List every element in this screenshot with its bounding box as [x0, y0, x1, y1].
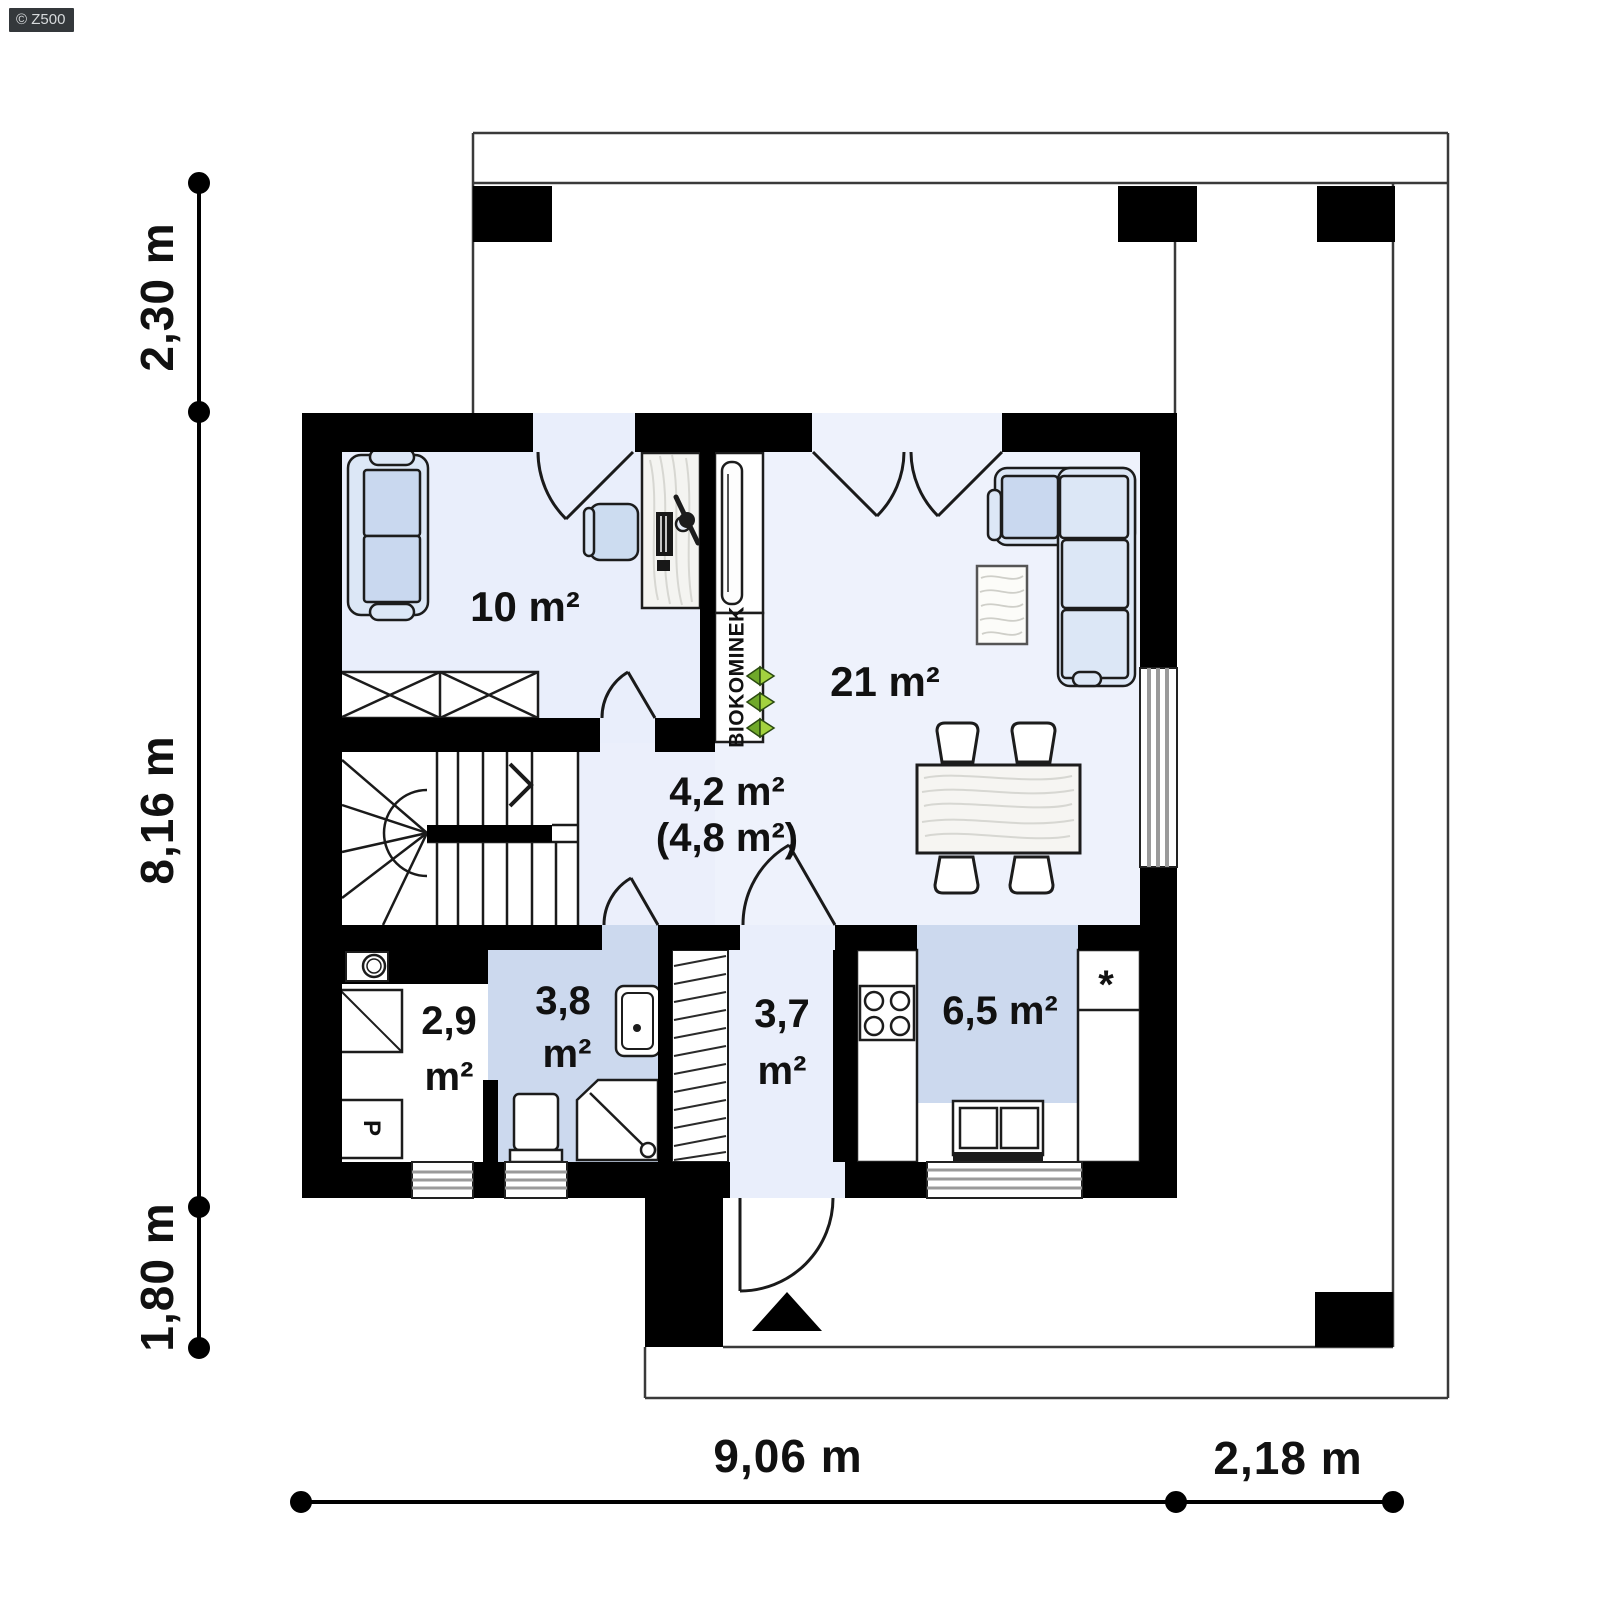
- room-label-vestibule-unit: m²: [758, 1051, 807, 1091]
- water-heater: [340, 990, 402, 1052]
- room-label-kitchen: 6,5 m²: [942, 991, 1058, 1031]
- stairs-landing-bar: [427, 825, 552, 842]
- pillar-top-right: [1317, 186, 1395, 242]
- room-label-bathroom-value: 3,8: [535, 981, 591, 1021]
- washing-machine-label: P: [359, 1120, 383, 1136]
- window-kitchen: [927, 1162, 1082, 1198]
- office-chair: [584, 504, 638, 560]
- utility-sink: [340, 948, 488, 984]
- fireplace-leaves: [747, 667, 774, 737]
- office-wardrobe: [340, 672, 538, 718]
- room-label-office: 10 m²: [470, 586, 580, 628]
- entrance-arrow: [752, 1292, 822, 1331]
- dimension-left-816: 8,16 m: [134, 735, 180, 884]
- door-entrance: [740, 1198, 833, 1291]
- room-label-hall-secondary: (4,8 m²): [656, 818, 798, 858]
- shower: [577, 1080, 658, 1160]
- kitchen-stove: [860, 986, 914, 1040]
- room-label-vestibule-value: 3,7: [754, 994, 810, 1034]
- dimension-bottom-906: 9,06 m: [713, 1433, 862, 1479]
- room-label-utility-value: 2,9: [421, 1001, 477, 1041]
- window-utility: [412, 1162, 473, 1198]
- fridge-marker: *: [1098, 965, 1114, 1005]
- pillar-top-middle: [1118, 186, 1197, 242]
- dimension-left-230: 2,30 m: [134, 222, 180, 371]
- dining-table: [917, 765, 1080, 853]
- floor-plan-drawing: [0, 0, 1600, 1600]
- toilet: [510, 1094, 562, 1162]
- window-living-right: [1140, 668, 1177, 867]
- kitchen-sink: [953, 1101, 1043, 1162]
- room-label-utility-unit: m²: [425, 1057, 474, 1097]
- window-bathroom: [505, 1162, 567, 1198]
- office-chair-back: [584, 508, 594, 556]
- office-desk: [642, 453, 700, 608]
- pillar-bottom-right: [1315, 1292, 1393, 1347]
- floor-plan-page: © Z500 2,30 m 8,16 m 1,80 m 9,06 m 2,18 …: [0, 0, 1600, 1600]
- vestibule-wardrobe: [672, 950, 728, 1162]
- room-label-living: 21 m²: [830, 661, 940, 703]
- living-rug: [977, 566, 1027, 644]
- tv-screen: [722, 462, 742, 604]
- porch-pier: [645, 1197, 723, 1347]
- pillar-top-left: [473, 186, 552, 242]
- office-sofa: [348, 449, 428, 620]
- room-label-bathroom-unit: m²: [543, 1034, 592, 1074]
- bathroom-sink: [616, 986, 660, 1056]
- room-label-hall: 4,2 m²: [669, 772, 785, 812]
- tv-niche: [715, 453, 763, 613]
- fireplace-label: BIOKOMINEK: [727, 606, 748, 748]
- dimension-left-180: 1,80 m: [134, 1202, 180, 1351]
- watermark-logo: © Z500: [9, 8, 74, 32]
- desk-keyboard: [656, 512, 673, 556]
- dimension-bottom-218: 2,18 m: [1213, 1435, 1362, 1481]
